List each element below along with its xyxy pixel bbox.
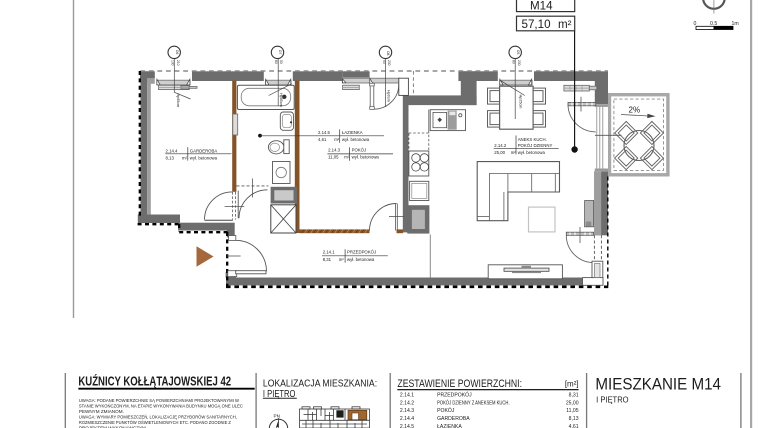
svg-text:2%: 2% xyxy=(629,105,641,114)
svg-text:4,61: 4,61 xyxy=(569,424,579,428)
svg-text:O8: O8 xyxy=(386,51,390,56)
svg-text:O5: O5 xyxy=(516,50,520,55)
svg-text:m²: m² xyxy=(511,150,517,155)
svg-text:m²: m² xyxy=(334,137,340,142)
svg-text:4,61: 4,61 xyxy=(318,137,327,142)
svg-text:ROZMIESZCZENIE PUNKTÓW OŚWIETL: ROZMIESZCZENIE PUNKTÓW OŚWIETLENIOWYCH E… xyxy=(79,418,231,425)
svg-text:POKÓJ: POKÓJ xyxy=(437,407,455,414)
svg-text:UWAGA: WYMIARY POMIESZCZEŃ, LO: UWAGA: WYMIARY POMIESZCZEŃ, LOKALIZACJĘ … xyxy=(79,414,237,420)
svg-text:O6: O6 xyxy=(175,50,179,55)
svg-text:wył. betonowa: wył. betonowa xyxy=(352,155,380,160)
svg-text:UWAGA: PODANE POWIERZCHNIE SĄ: UWAGA: PODANE POWIERZCHNIE SĄ POWIERZCHN… xyxy=(79,398,240,403)
svg-text:PRZEDPOKÓJ: PRZEDPOKÓJ xyxy=(347,249,376,254)
svg-text:POKÓJ: POKÓJ xyxy=(352,148,367,153)
svg-text:Hp25cm: Hp25cm xyxy=(518,95,522,109)
svg-text:wył. betonowa: wył. betonowa xyxy=(518,150,546,155)
svg-text:[m²]: [m²] xyxy=(565,379,579,388)
svg-text:2.14.3: 2.14.3 xyxy=(400,408,414,414)
svg-text:GARDEROBA: GARDEROBA xyxy=(190,149,218,154)
svg-text:m²: m² xyxy=(558,18,572,31)
svg-text:2.14.2: 2.14.2 xyxy=(494,143,507,148)
svg-text:210: 210 xyxy=(176,60,180,66)
svg-text:11,05: 11,05 xyxy=(566,408,579,414)
svg-text:230: 230 xyxy=(387,60,391,66)
svg-text:M14: M14 xyxy=(530,0,553,13)
svg-text:wył. betonowa: wył. betonowa xyxy=(342,137,370,142)
svg-text:I PIĘTRO: I PIĘTRO xyxy=(596,395,629,405)
svg-text:50: 50 xyxy=(279,60,283,64)
svg-text:8,13: 8,13 xyxy=(569,416,579,422)
svg-text:57,10: 57,10 xyxy=(522,18,551,31)
svg-text:Hp0cm: Hp0cm xyxy=(386,90,390,102)
svg-text:2.14.1: 2.14.1 xyxy=(400,393,414,399)
svg-text:11,05: 11,05 xyxy=(328,155,339,160)
svg-text:MIESZKANIE M14: MIESZKANIE M14 xyxy=(595,374,721,393)
svg-text:80: 80 xyxy=(274,60,278,64)
svg-text:m²: m² xyxy=(344,155,350,160)
svg-text:8,13: 8,13 xyxy=(166,155,175,160)
svg-text:ZESTAWIENIE POWIERZCHNI:: ZESTAWIENIE POWIERZCHNI: xyxy=(397,378,522,390)
svg-text:2.14.5: 2.14.5 xyxy=(400,424,414,428)
svg-text:2.14.3: 2.14.3 xyxy=(328,148,341,153)
svg-text:m²: m² xyxy=(182,155,188,160)
svg-text:wył. betonowa: wył. betonowa xyxy=(190,155,218,160)
svg-text:2.14.1: 2.14.1 xyxy=(323,249,336,254)
svg-text:LOKALIZACJA MIESZKANIA:: LOKALIZACJA MIESZKANIA: xyxy=(263,378,377,389)
svg-text:PEWNYM ZMIANOM.: PEWNYM ZMIANOM. xyxy=(79,409,124,414)
svg-text:m²: m² xyxy=(339,257,345,262)
svg-text:Hp85cm: Hp85cm xyxy=(279,93,283,107)
svg-text:2.14.2: 2.14.2 xyxy=(400,400,414,406)
svg-text:KUŹNICY KOŁŁĄTAJOWSKIEJ 42: KUŹNICY KOŁŁĄTAJOWSKIEJ 42 xyxy=(78,373,231,388)
svg-text:STANIE WYKOŃCZONYM, NA ETAPIE: STANIE WYKOŃCZONYM, NA ETAPIE WYKONYWANI… xyxy=(79,403,244,409)
svg-text:2.14.4: 2.14.4 xyxy=(400,416,414,422)
svg-text:230: 230 xyxy=(517,60,521,66)
svg-text:O7: O7 xyxy=(278,50,282,55)
svg-text:2.14.5: 2.14.5 xyxy=(318,130,331,135)
svg-text:wył. betonowa: wył. betonowa xyxy=(347,257,375,262)
svg-text:GARDEROBA: GARDEROBA xyxy=(437,416,470,422)
svg-text:POKÓJ DZIENNY Z ANEKSEM KUCH.: POKÓJ DZIENNY Z ANEKSEM KUCH. xyxy=(437,399,510,406)
svg-text:ŁAZIENKA: ŁAZIENKA xyxy=(342,130,363,135)
svg-text:8,31: 8,31 xyxy=(569,393,579,399)
svg-text:25,00: 25,00 xyxy=(494,150,505,155)
svg-text:PN: PN xyxy=(274,413,280,418)
svg-text:25,00: 25,00 xyxy=(566,400,579,406)
svg-text:ŁAZIENKA: ŁAZIENKA xyxy=(437,424,462,428)
svg-text:2.14.4: 2.14.4 xyxy=(166,149,179,154)
svg-text:POKÓJ DZIENNY: POKÓJ DZIENNY xyxy=(518,143,553,148)
svg-text:8,31: 8,31 xyxy=(323,257,332,262)
svg-text:PRZEDPOKÓJ: PRZEDPOKÓJ xyxy=(437,392,472,399)
svg-text:ANEKS KUCH.: ANEKS KUCH. xyxy=(518,137,547,142)
svg-text:Hp85cm: Hp85cm xyxy=(176,94,180,108)
